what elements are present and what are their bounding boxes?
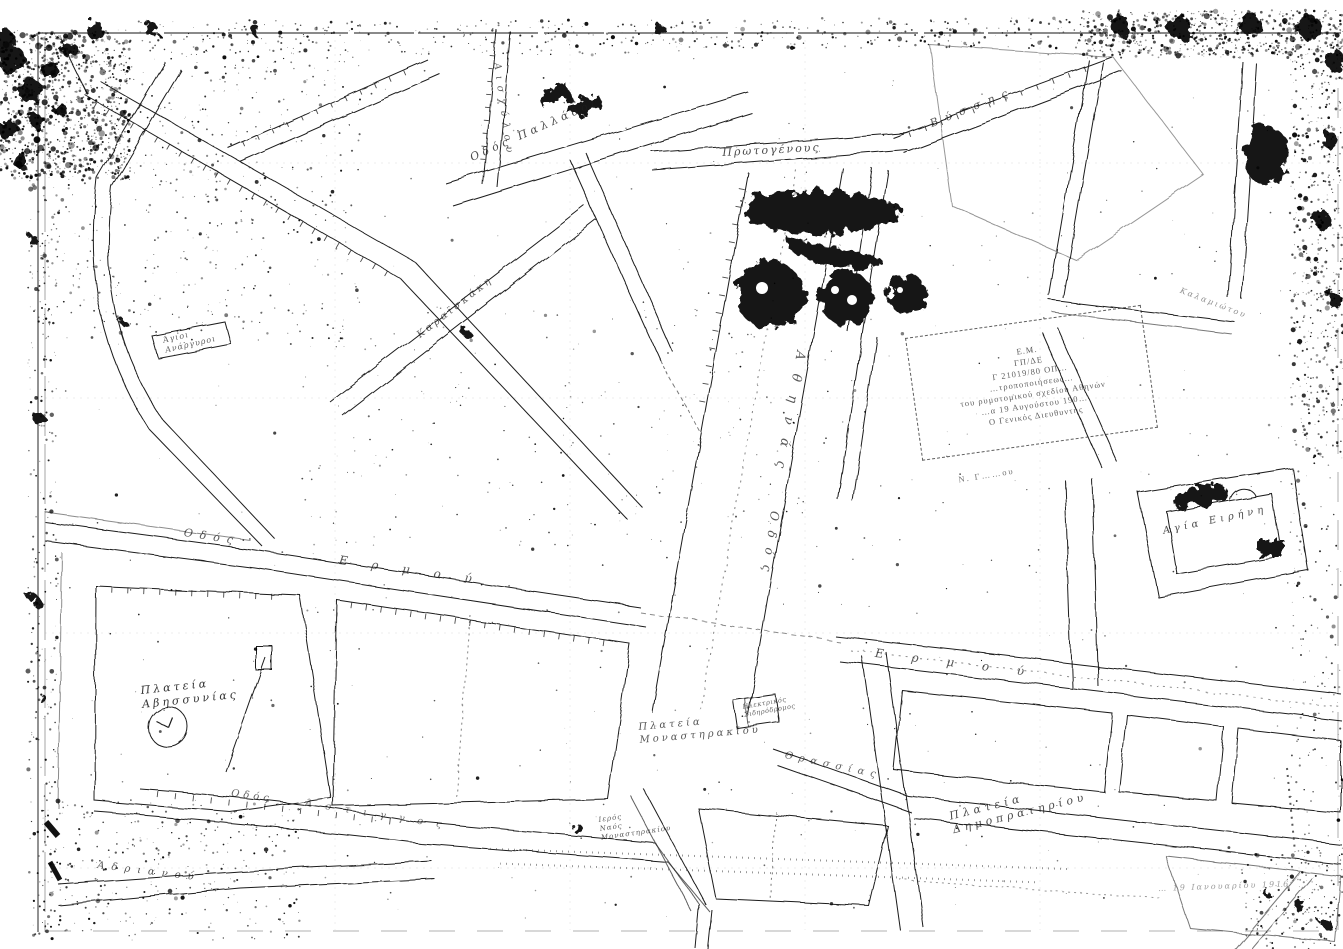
map-scan: ΠρωτογένουςΒύσσηςΟδός ΠαλλάδοςΑισχύλουΚα…: [0, 0, 1343, 949]
map-artwork: [0, 0, 1343, 949]
scan-noise: [0, 9, 1343, 949]
survey-grid: [45, 40, 1330, 930]
margin-marks: [46, 768, 1295, 880]
street-linework: [45, 30, 1341, 949]
